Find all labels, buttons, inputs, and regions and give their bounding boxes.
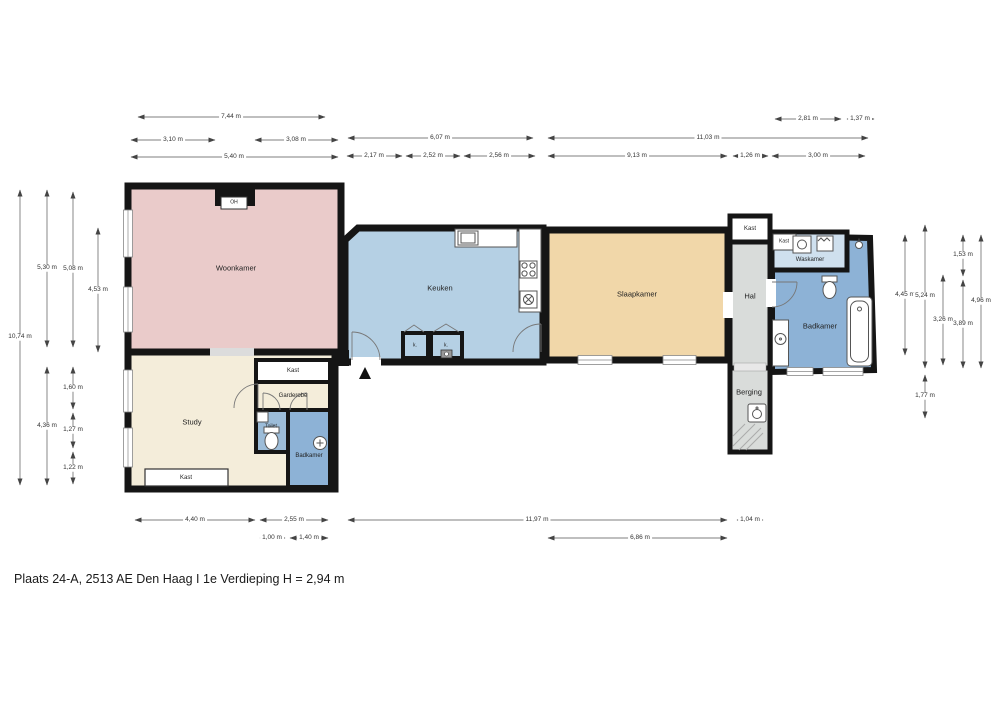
extractor-icon — [520, 291, 537, 308]
dim-label: 5,24 m — [913, 293, 937, 300]
room-label-toilet: Toilet — [265, 425, 277, 430]
dim-label: 1,27 m — [61, 427, 85, 434]
dim-label: 5,08 m — [61, 266, 85, 273]
page-title: Plaats 24-A, 2513 AE Den Haag I 1e Verdi… — [14, 572, 344, 586]
bathtub-icon — [847, 297, 872, 366]
dim-label: 4,40 m — [183, 517, 207, 524]
opening-hal-slaapkamer — [723, 292, 733, 318]
floorplan-page: 7,44 m 3,10 m 3,08 m 5,40 m 6,07 m 2,17 … — [0, 0, 1000, 707]
dim-label: 9,13 m — [625, 153, 649, 160]
room-label-kast-study: Kast — [180, 475, 192, 481]
room-label-kast-waskamer: Kast — [779, 240, 789, 245]
opening-badkamer-door — [766, 279, 776, 307]
dim-label: 2,52 m — [421, 153, 445, 160]
room-label-study: Study — [182, 418, 201, 426]
laundry-basket-icon — [817, 236, 833, 251]
opening-hal-berging — [734, 363, 766, 371]
dim-label: 2,55 m — [282, 517, 306, 524]
wall-stub — [333, 350, 349, 366]
dim-label: 1,22 m — [61, 465, 85, 472]
dim-label: 1,60 m — [61, 385, 85, 392]
room-label-slaapkamer: Slaapkamer — [617, 290, 657, 298]
dim-label: 6,86 m — [628, 535, 652, 542]
dim-label: 6,07 m — [428, 135, 452, 142]
toilet-right-icon — [822, 276, 837, 299]
washing-machine-icon — [793, 236, 811, 253]
dim-label: 3,89 m — [951, 321, 975, 328]
room-label-kast-hal: Kast — [744, 226, 756, 232]
dim-label: 5,30 m — [35, 265, 59, 272]
closet-boiler-icon — [441, 350, 452, 358]
room-label-keuken: Keuken — [427, 284, 452, 292]
room-label-berging: Berging — [736, 388, 762, 396]
room-label-oh: OH — [230, 201, 238, 206]
dim-label: 2,17 m — [362, 153, 386, 160]
dim-label: 5,40 m — [222, 154, 246, 161]
dim-label: 11,97 m — [523, 517, 550, 524]
dim-label: 1,26 m — [738, 153, 762, 160]
dim-label: 2,81 m — [796, 116, 820, 123]
dim-label: 4,96 m — [969, 298, 993, 305]
room-label-hal: Hal — [744, 292, 755, 300]
dim-label: 7,44 m — [219, 114, 243, 121]
room-label-closet-1: k. — [413, 344, 417, 349]
dim-label: 1,77 m — [913, 393, 937, 400]
floorplan-drawing — [0, 0, 1000, 707]
room-label-badkamer-right: Badkamer — [803, 322, 837, 330]
dim-label: 11,03 m — [694, 135, 721, 142]
dim-label: 1,04 m — [738, 517, 762, 524]
room-label-kast-cluster: Kast — [287, 368, 299, 374]
north-arrow-icon — [359, 367, 371, 379]
shower-drain-icon — [314, 437, 327, 450]
dim-label: 2,56 m — [487, 153, 511, 160]
opening-keuken-entry — [351, 357, 381, 366]
dim-label: 4,36 m — [35, 423, 59, 430]
dim-label: 1,00 m — [260, 535, 284, 542]
dim-label: 3,08 m — [284, 137, 308, 144]
dim-label: 4,53 m — [86, 287, 110, 294]
opening-woonkamer-study — [210, 348, 254, 356]
dim-label: 3,10 m — [161, 137, 185, 144]
room-label-badkamer-left: Badkamer — [295, 453, 322, 459]
dim-label: 1,37 m — [848, 116, 872, 123]
room-label-woonkamer: Woonkamer — [216, 264, 256, 272]
stove-hob-icon — [520, 261, 537, 278]
washbasin-icon — [773, 320, 789, 366]
room-label-waskamer: Waskamer — [796, 257, 824, 263]
dim-label: 10,74 m — [6, 334, 34, 341]
dim-label: 1,40 m — [297, 535, 321, 542]
dim-label: 1,53 m — [951, 252, 975, 259]
dim-label: 3,00 m — [806, 153, 830, 160]
room-hal-area — [730, 242, 770, 368]
berging-boiler-icon — [748, 404, 766, 422]
room-label-closet-2: k. — [444, 344, 448, 349]
room-label-garderobe: Garderobe — [279, 393, 308, 399]
